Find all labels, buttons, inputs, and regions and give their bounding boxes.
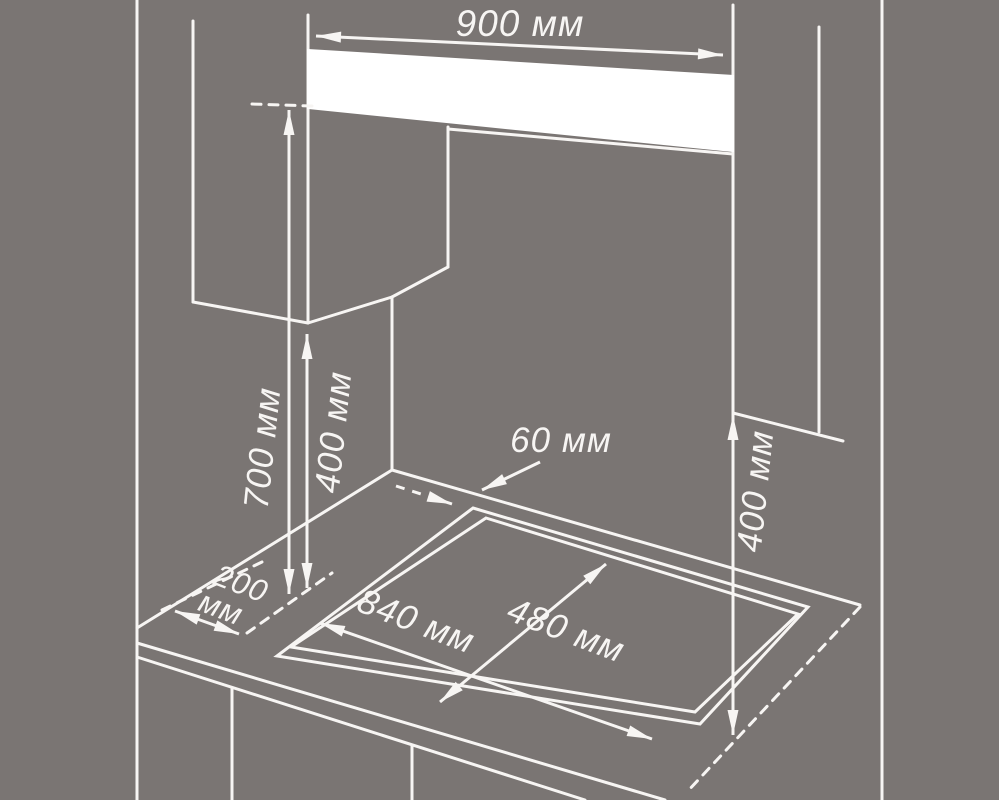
dim-hood-above-counter: 700 мм	[237, 104, 312, 594]
dim-hood-above-counter-label: 700 мм	[237, 385, 289, 511]
left-cabinet-underside-edge	[308, 297, 392, 323]
counter-back-edge	[392, 470, 860, 605]
counter-front-bottom-edge	[137, 657, 585, 800]
dim-rear-offset-label: 60 мм	[510, 421, 612, 460]
dim-left-cabinet-above-counter: 400 мм	[307, 334, 359, 588]
left-cabinet-side-bottom	[392, 267, 448, 297]
dim-left-cabinet-label: 400 мм	[308, 369, 360, 495]
dim-rear-offset-leader	[482, 462, 540, 490]
left-cabinet-bottom-edge	[193, 302, 308, 323]
dim-hood-width-label: 900 мм	[456, 3, 585, 44]
dim-hood-width: 900 мм	[316, 3, 723, 55]
installation-diagram: 900 мм 700 мм 400 мм 60 мм	[0, 0, 999, 800]
dim-cutout-width-label: 840 мм	[352, 581, 480, 661]
hood-level-dashed-line	[252, 104, 312, 106]
dim-cutout-depth-label: 480 мм	[502, 590, 630, 670]
dim-right-cabinet-label: 400 мм	[730, 428, 782, 554]
dim-rear-offset-dashed-arrow	[396, 486, 452, 504]
dim-rear-offset: 60 мм	[396, 421, 612, 504]
counter-right-cut-edge	[686, 607, 860, 793]
counter-front-top-edge	[137, 643, 665, 800]
